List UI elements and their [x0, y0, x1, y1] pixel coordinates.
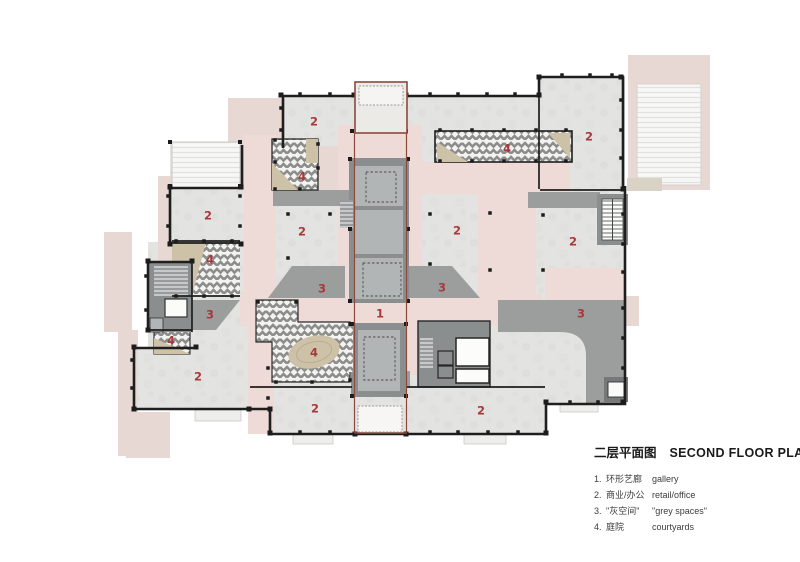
legend-item-en: "grey spaces" — [652, 503, 794, 519]
legend-title-en: SECOND FLOOR PLAN — [670, 446, 800, 460]
legend-item-number: 4. — [594, 519, 606, 535]
room-number-label: 4 — [310, 347, 318, 359]
room-number-label: 2 — [194, 371, 202, 383]
legend-item-number: 2. — [594, 487, 606, 503]
room-number-label: 2 — [298, 226, 306, 238]
legend-item-number: 1. — [594, 471, 606, 487]
legend-item-en: courtyards — [652, 519, 794, 535]
legend-item-en: gallery — [652, 471, 794, 487]
legend-item: 3. "灰空间" "grey spaces" — [594, 503, 794, 519]
legend-item-en: retail/office — [652, 487, 794, 503]
legend-items: 1. 环形艺廊 gallery 2. 商业/办公 retail/office 3… — [594, 471, 794, 535]
room-number-label: 4 — [167, 335, 175, 347]
legend-item-number: 3. — [594, 503, 606, 519]
legend-item-zh: 庭院 — [606, 519, 652, 535]
service-room — [418, 321, 490, 387]
central-core-lower — [351, 323, 407, 397]
legend-title-zh: 二层平面图 — [594, 442, 657, 461]
room-number-label: 2 — [310, 116, 318, 128]
room-number-label: 4 — [206, 254, 214, 266]
room-number-label: 3 — [206, 309, 214, 321]
room-number-label: 3 — [438, 282, 446, 294]
room-number-label: 2 — [477, 405, 485, 417]
room-number-label: 4 — [503, 143, 511, 155]
central-core-upper — [349, 158, 409, 303]
room-number-label: 4 — [298, 171, 306, 183]
legend-item: 4. 庭院 courtyards — [594, 519, 794, 535]
legend-item-zh: "灰空间" — [606, 503, 652, 519]
stair-core-left — [148, 262, 192, 332]
legend-panel: 二层平面图 SECOND FLOOR PLAN 1. 环形艺廊 gallery … — [594, 442, 794, 535]
room-number-label: 2 — [453, 225, 461, 237]
room-number-label: 3 — [318, 283, 326, 295]
legend-item-zh: 商业/办公 — [606, 487, 652, 503]
floor-plan-page: 1222222222333344444 二层平面图 SECOND FLOOR P… — [0, 0, 800, 562]
room-number-label: 2 — [204, 210, 212, 222]
legend-item: 1. 环形艺廊 gallery — [594, 471, 794, 487]
legend-item: 2. 商业/办公 retail/office — [594, 487, 794, 503]
room-number-label: 3 — [577, 308, 585, 320]
room-number-label: 2 — [311, 403, 319, 415]
room-number-label: 1 — [376, 308, 384, 320]
legend-title: 二层平面图 SECOND FLOOR PLAN — [594, 442, 794, 461]
room-number-label: 2 — [569, 236, 577, 248]
legend-item-zh: 环形艺廊 — [606, 471, 652, 487]
room-number-label: 2 — [585, 131, 593, 143]
